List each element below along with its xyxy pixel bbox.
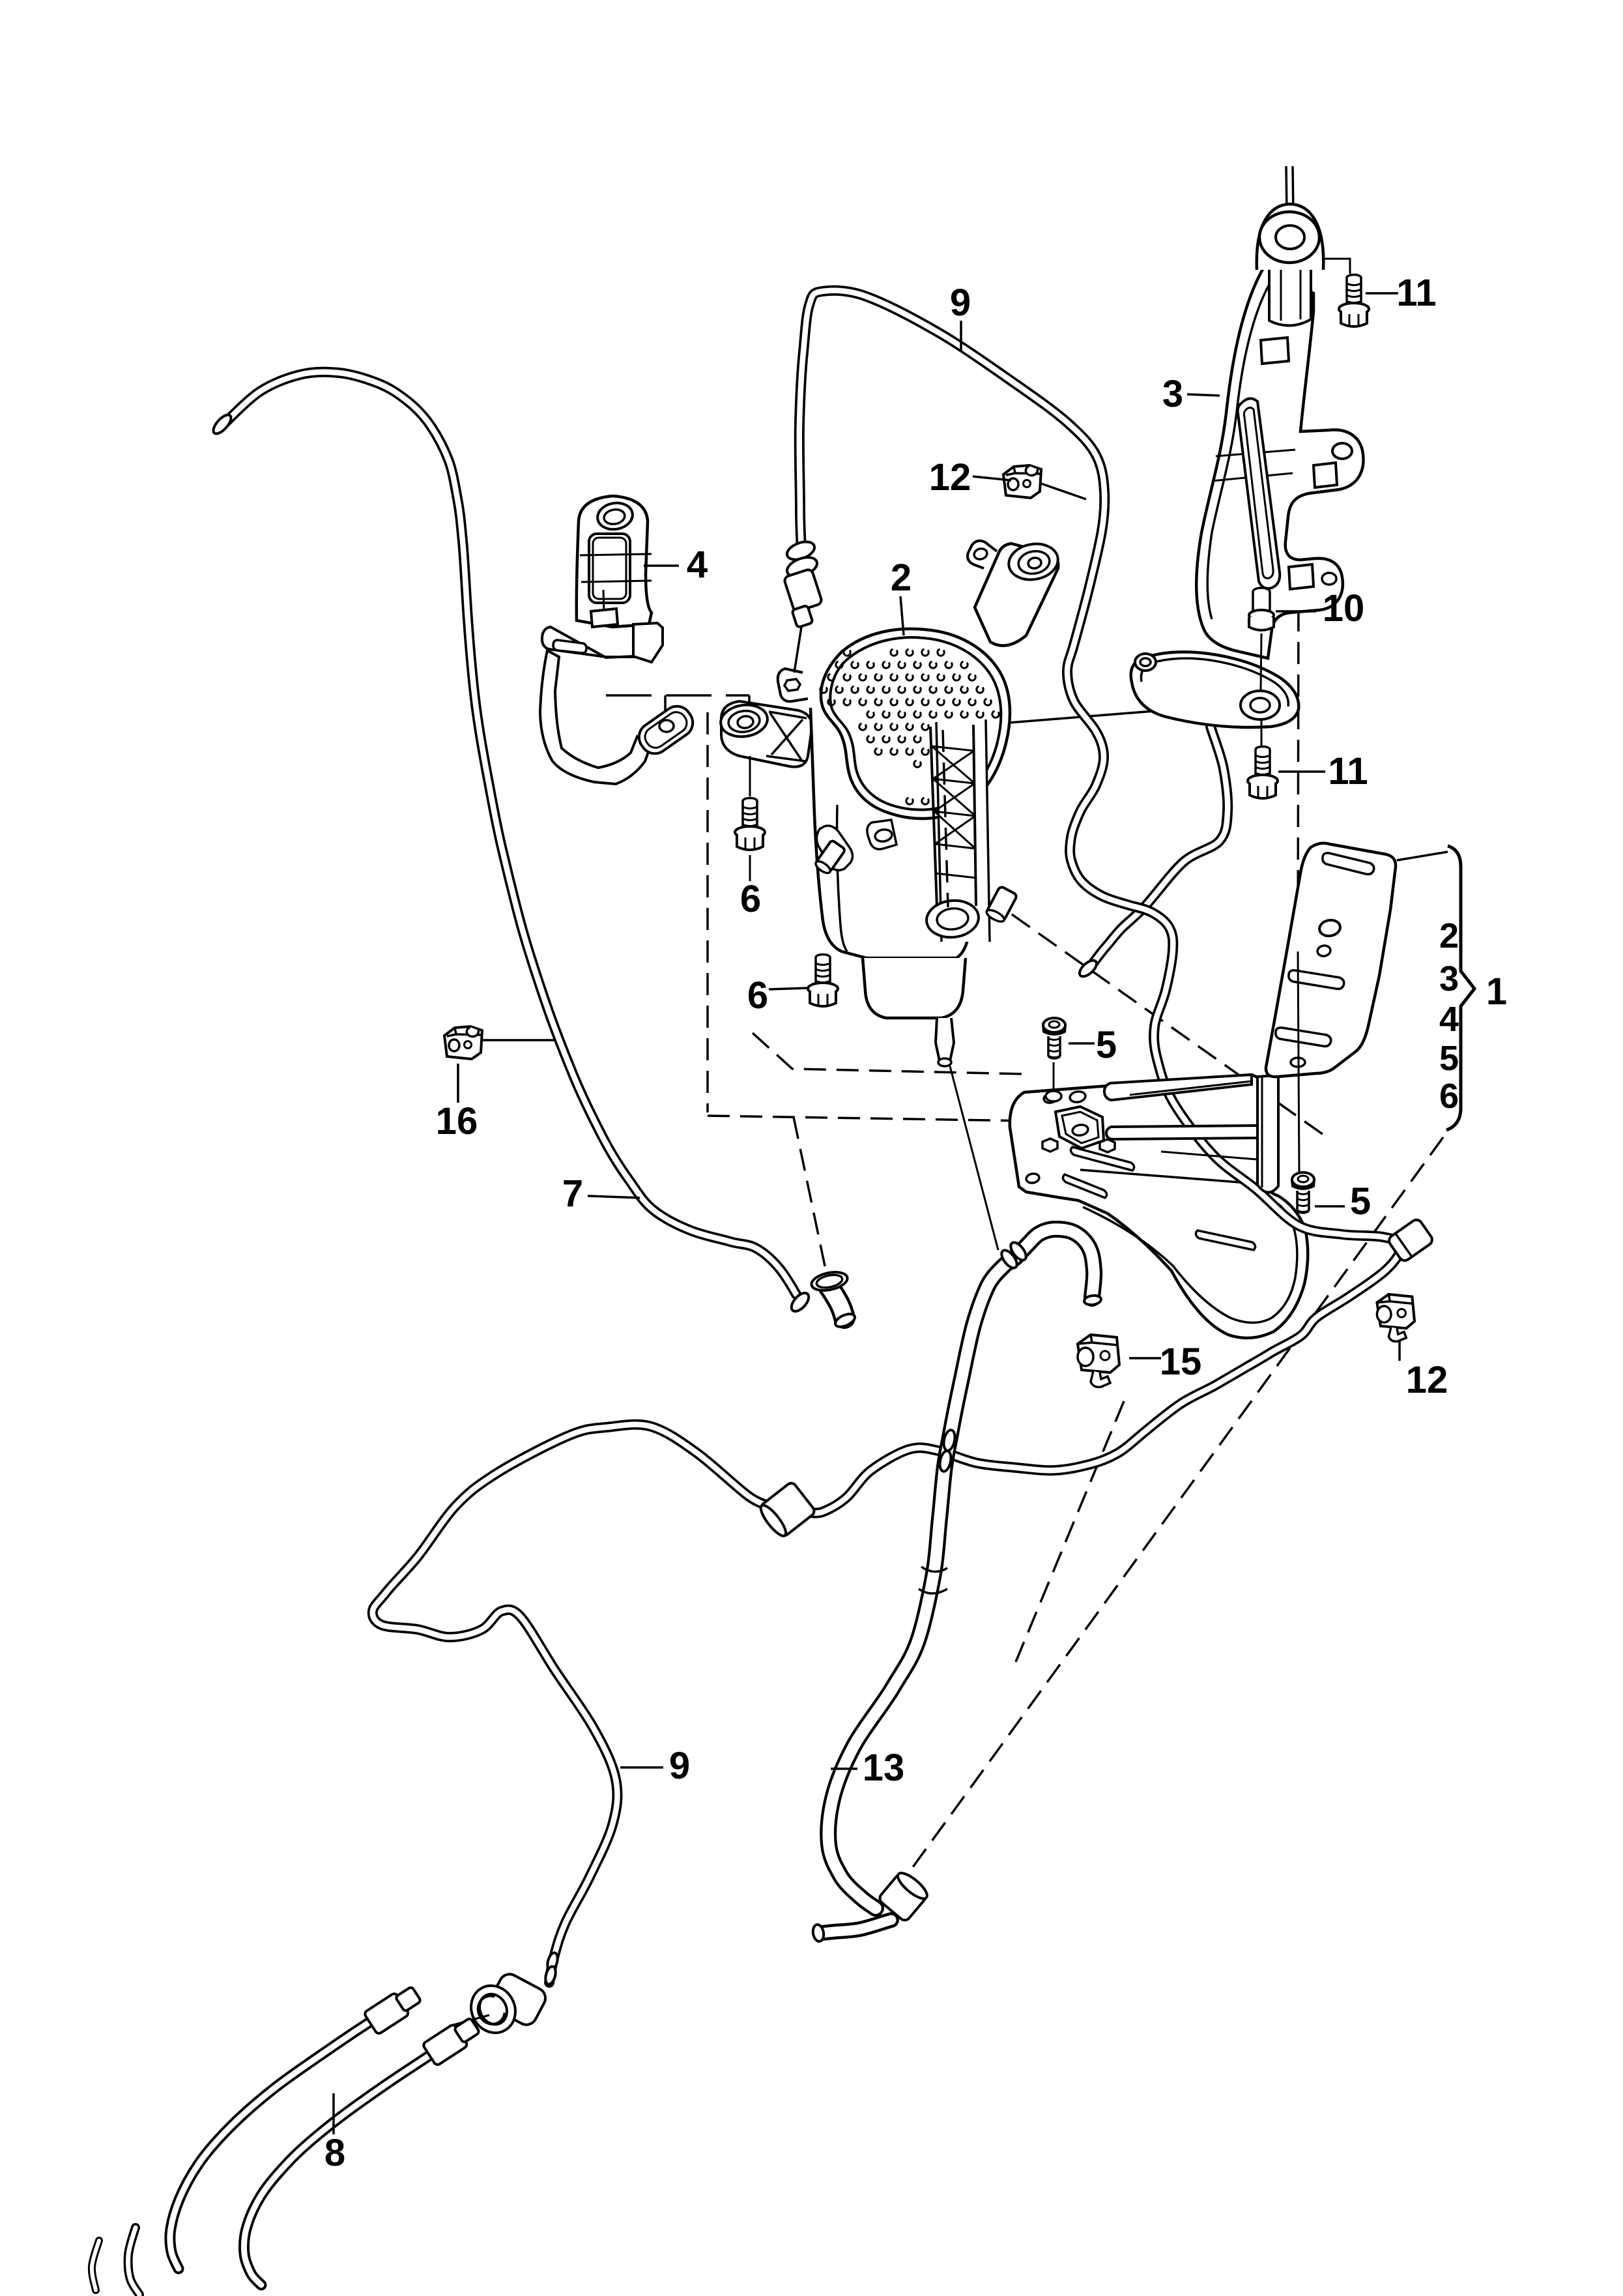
svg-text:5: 5 <box>1350 1180 1371 1223</box>
svg-text:13: 13 <box>863 1747 905 1789</box>
svg-text:4: 4 <box>687 544 708 586</box>
svg-text:2: 2 <box>891 557 912 599</box>
svg-text:3: 3 <box>1162 373 1183 415</box>
svg-text:11: 11 <box>1328 750 1368 792</box>
svg-text:16: 16 <box>436 1100 478 1142</box>
svg-text:10: 10 <box>1323 587 1365 630</box>
svg-text:12: 12 <box>1406 1359 1448 1401</box>
svg-text:5: 5 <box>1439 1039 1459 1078</box>
svg-text:7: 7 <box>562 1172 583 1215</box>
svg-text:12: 12 <box>929 456 971 499</box>
svg-text:1: 1 <box>1486 970 1507 1013</box>
svg-text:6: 6 <box>740 878 761 920</box>
svg-text:3: 3 <box>1439 959 1459 998</box>
svg-text:2: 2 <box>1439 916 1459 955</box>
svg-text:6: 6 <box>747 974 768 1017</box>
svg-text:8: 8 <box>324 2132 345 2174</box>
svg-text:4: 4 <box>1439 1000 1459 1039</box>
svg-text:11: 11 <box>1396 272 1436 314</box>
svg-text:5: 5 <box>1096 1024 1117 1066</box>
svg-text:15: 15 <box>1160 1341 1202 1383</box>
svg-text:9: 9 <box>669 1745 690 1787</box>
svg-text:6: 6 <box>1439 1077 1459 1116</box>
svg-text:9: 9 <box>950 282 971 324</box>
